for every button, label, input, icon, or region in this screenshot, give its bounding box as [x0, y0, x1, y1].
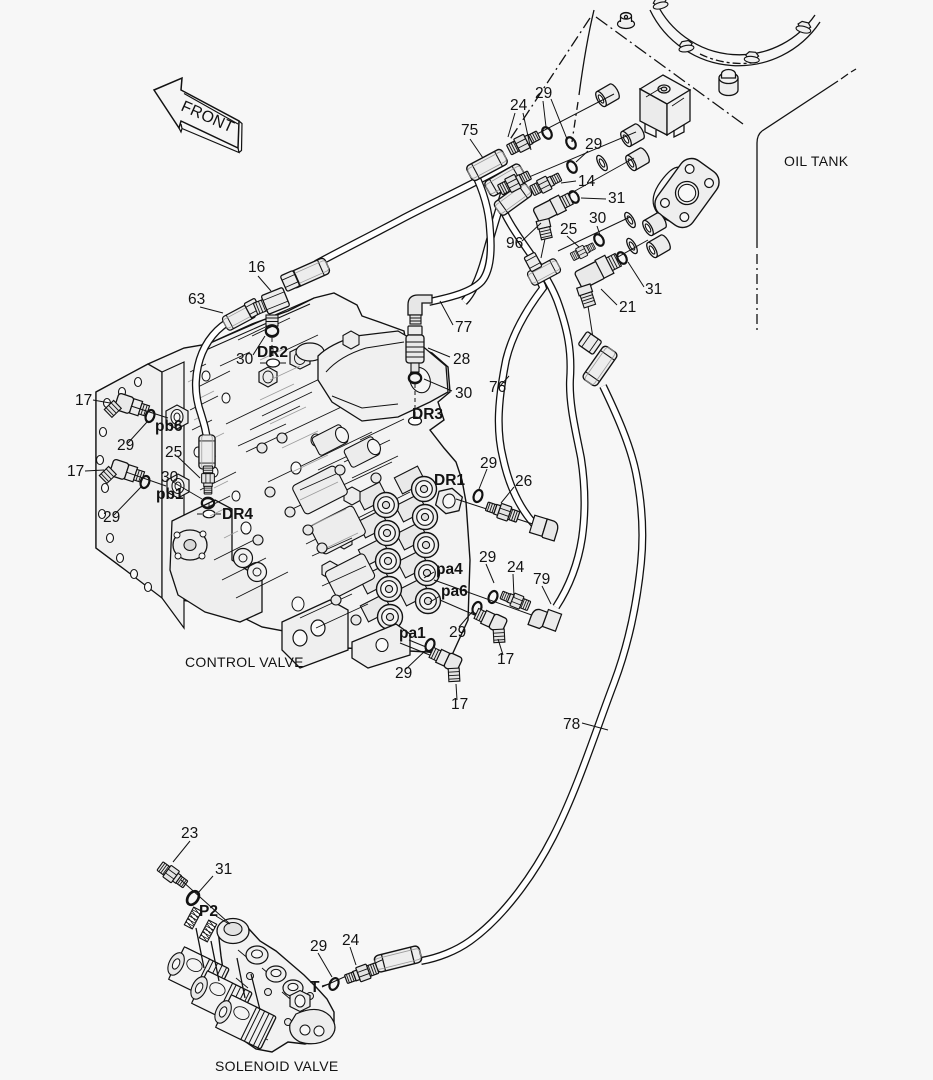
svg-text:14: 14: [578, 173, 596, 190]
svg-text:pa4: pa4: [436, 561, 463, 578]
svg-text:26: 26: [515, 473, 532, 490]
svg-text:DR2: DR2: [257, 344, 288, 361]
svg-text:30: 30: [161, 469, 179, 486]
svg-text:24: 24: [510, 97, 528, 114]
svg-text:25: 25: [560, 221, 577, 238]
svg-text:29: 29: [395, 665, 412, 682]
svg-text:OIL TANK: OIL TANK: [784, 153, 849, 169]
svg-text:pb6: pb6: [155, 418, 183, 435]
svg-text:31: 31: [608, 190, 625, 207]
svg-text:P2: P2: [199, 903, 218, 920]
svg-text:pa6: pa6: [441, 583, 468, 600]
svg-text:DR4: DR4: [222, 506, 253, 523]
svg-text:77: 77: [455, 319, 472, 336]
svg-text:17: 17: [67, 463, 84, 480]
svg-text:DR3: DR3: [412, 406, 443, 423]
svg-text:30: 30: [589, 210, 607, 227]
svg-text:29: 29: [103, 509, 120, 526]
svg-text:29: 29: [585, 136, 602, 153]
svg-text:pa1: pa1: [399, 625, 426, 642]
svg-text:21: 21: [619, 299, 636, 316]
svg-text:29: 29: [310, 938, 327, 955]
svg-text:30: 30: [455, 385, 473, 402]
svg-text:17: 17: [75, 392, 92, 409]
svg-text:23: 23: [181, 825, 198, 842]
svg-text:31: 31: [645, 281, 662, 298]
svg-text:29: 29: [479, 549, 496, 566]
svg-text:75: 75: [461, 122, 478, 139]
svg-text:17: 17: [451, 696, 468, 713]
svg-text:79: 79: [533, 571, 550, 588]
svg-text:63: 63: [188, 291, 205, 308]
svg-text:SOLENOID VALVE: SOLENOID VALVE: [215, 1058, 339, 1074]
svg-text:pb1: pb1: [156, 486, 184, 503]
svg-text:31: 31: [215, 861, 232, 878]
svg-text:28: 28: [453, 351, 470, 368]
svg-text:T: T: [310, 979, 320, 996]
svg-text:24: 24: [507, 559, 525, 576]
svg-text:78: 78: [563, 716, 580, 733]
svg-text:CONTROL VALVE: CONTROL VALVE: [185, 654, 304, 670]
svg-text:29: 29: [449, 624, 466, 641]
svg-text:DR1: DR1: [434, 472, 465, 489]
svg-text:76: 76: [489, 379, 506, 396]
svg-text:16: 16: [248, 259, 265, 276]
svg-text:30: 30: [236, 351, 254, 368]
svg-text:96: 96: [506, 235, 523, 252]
svg-text:29: 29: [480, 455, 497, 472]
svg-text:25: 25: [165, 444, 182, 461]
svg-text:29: 29: [117, 437, 134, 454]
svg-text:29: 29: [535, 85, 552, 102]
svg-text:24: 24: [342, 932, 360, 949]
svg-text:17: 17: [497, 651, 514, 668]
